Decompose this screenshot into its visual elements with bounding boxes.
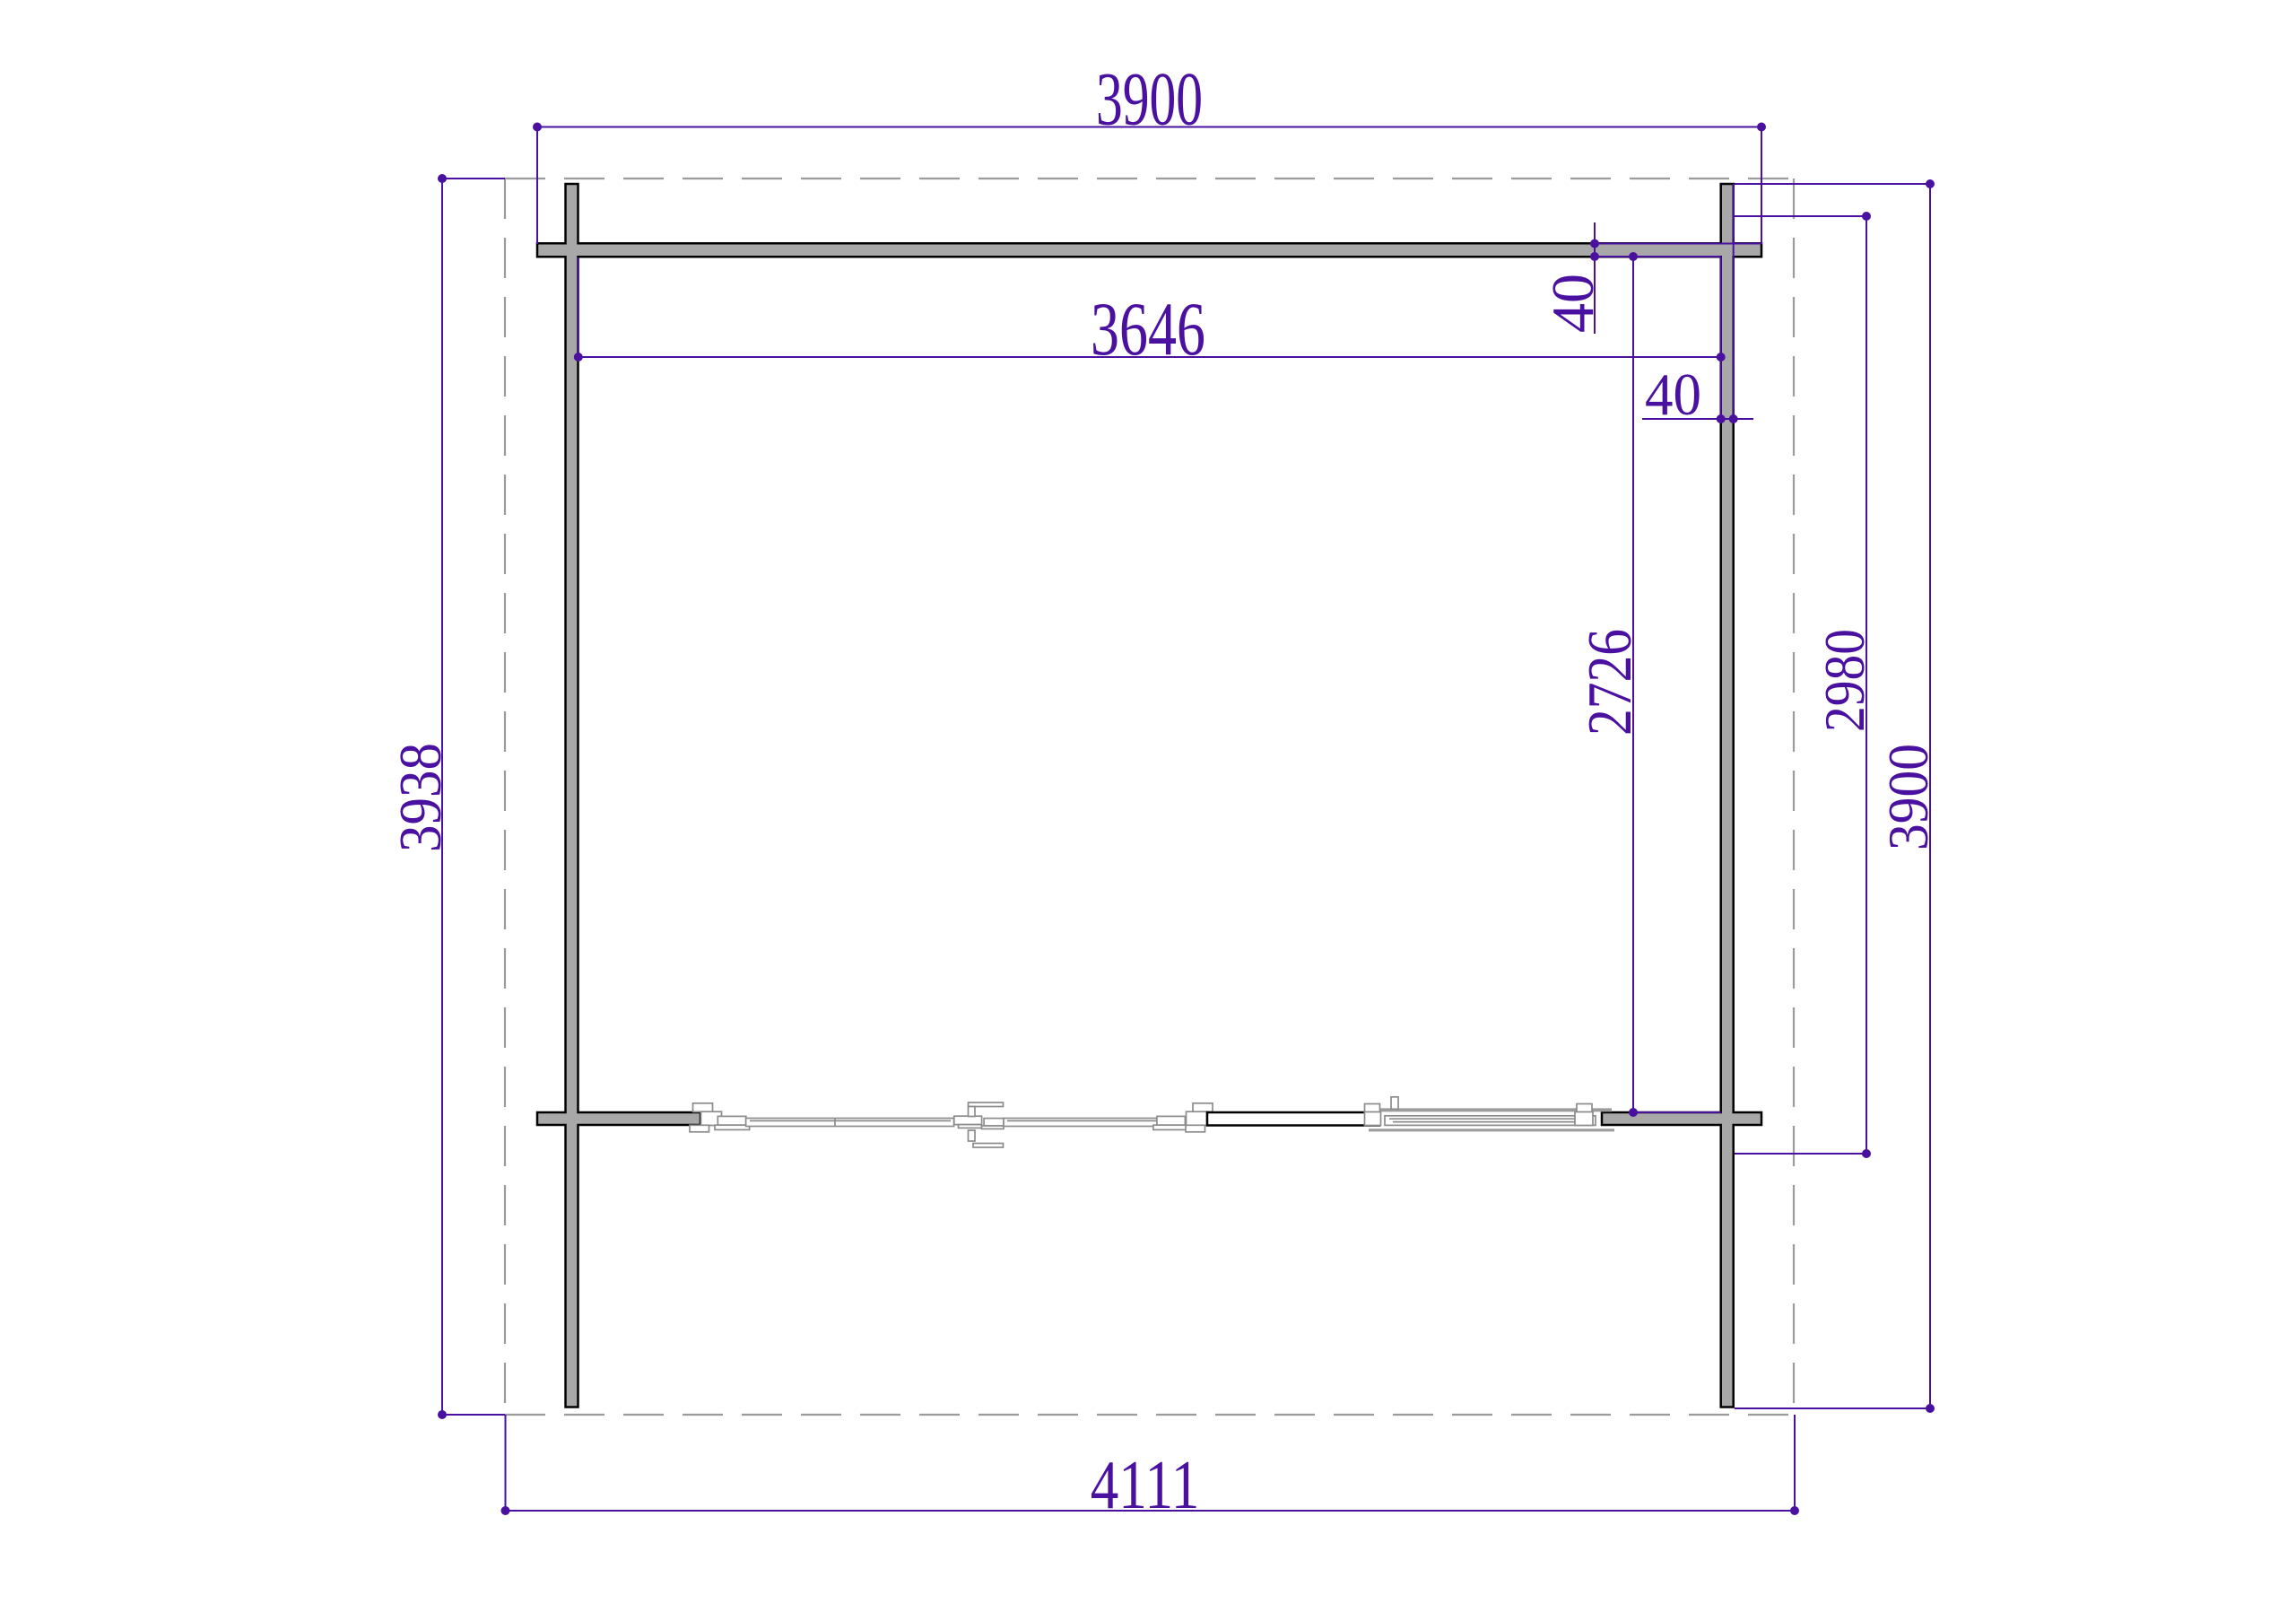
svg-text:2726: 2726 xyxy=(1576,629,1645,736)
svg-text:3900: 3900 xyxy=(1096,57,1203,142)
svg-text:40: 40 xyxy=(1645,362,1701,428)
svg-text:40: 40 xyxy=(1540,274,1606,333)
svg-text:4111: 4111 xyxy=(1091,1446,1200,1523)
svg-text:3938: 3938 xyxy=(387,743,454,852)
svg-text:3900: 3900 xyxy=(1876,744,1940,850)
svg-text:3646: 3646 xyxy=(1091,287,1205,371)
svg-text:2980: 2980 xyxy=(1813,629,1876,732)
